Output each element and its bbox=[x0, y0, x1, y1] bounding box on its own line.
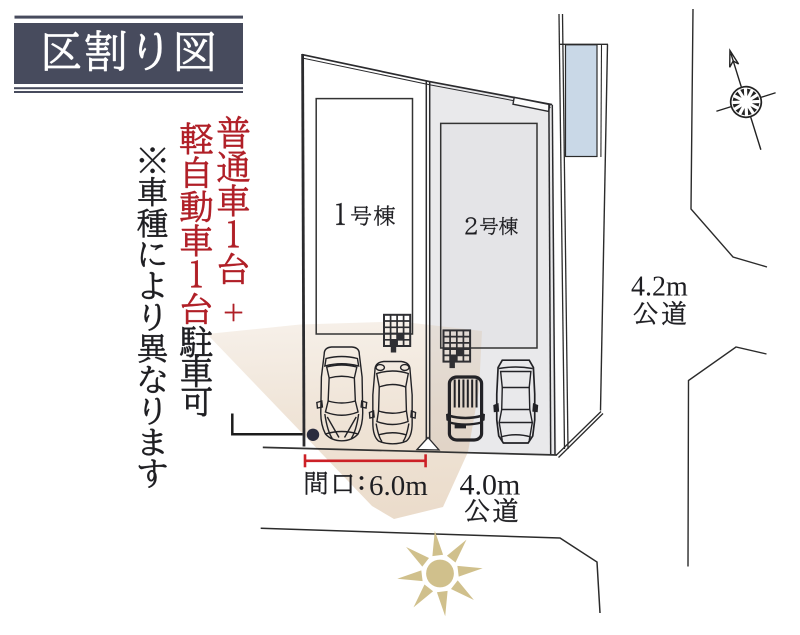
svg-text:6.0m: 6.0m bbox=[369, 470, 428, 502]
svg-text:4.2m: 4.2m bbox=[631, 272, 688, 303]
svg-text:4.0m: 4.0m bbox=[460, 469, 521, 502]
